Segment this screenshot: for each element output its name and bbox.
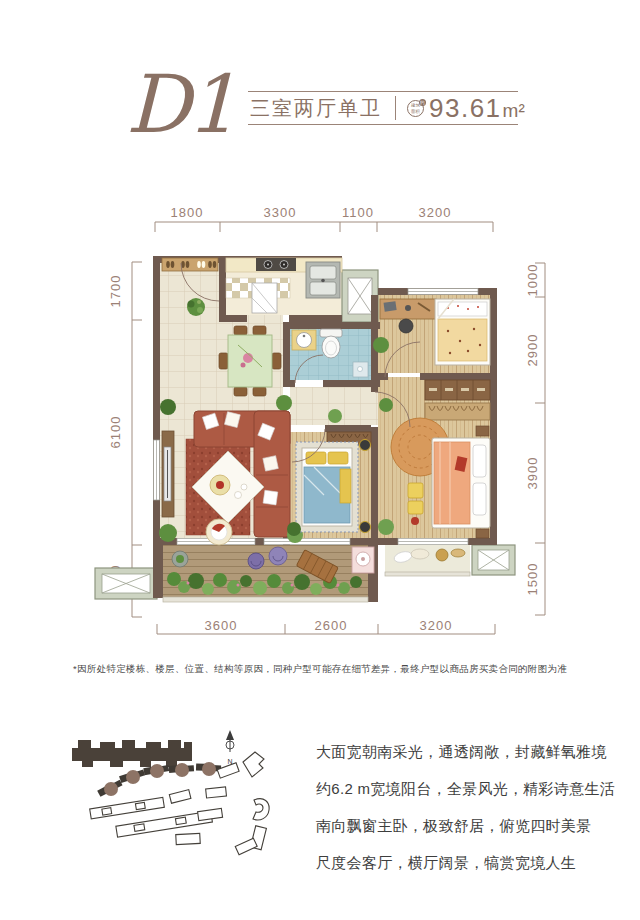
shoe-cabinet [162,258,218,271]
dim-left-1700: 1700 [108,275,123,308]
dim-top-1100: 1100 [342,205,374,220]
bathroom-vanity [292,330,316,350]
desk-chair [399,319,413,333]
master-nightstand-south [476,529,489,538]
kitchen-sink [306,262,340,298]
header-rule-bottom [248,124,518,125]
area-badge-mark: 约 [419,99,426,106]
area-badge-icon: 建筑 面积 约 [407,100,424,117]
dim-bottom-2600: 2600 [315,618,348,633]
arc-buildings [97,762,221,797]
dim-right-3900: 3900 [525,457,540,490]
unit-type-label: 三室两厅单卫 [250,95,382,122]
dim-right-2900: 2900 [525,334,540,367]
bay-railing [385,572,470,576]
master-plant-south [378,519,394,535]
bedroom2-plant-south [287,522,301,536]
header-row: 三室两厅单卫 建筑 面积 约 93.61 m² [248,92,518,124]
entry-plant [187,298,205,316]
description-line-1: 大面宽朝南采光，通透阔敞，封藏鲜氧雅境 [316,744,574,760]
dining-plant [276,395,292,411]
ac-platform-left [95,568,157,599]
master-wardrobe [425,380,490,420]
hall-plant [328,409,342,423]
description-block: 大面宽朝南采光，通透阔敞，封藏鲜氧雅境 约6.2 m宽境阳台，全景风光，精彩诗意… [316,744,574,892]
dim-top-3300: 3300 [264,205,297,220]
disclaimer-note: *因所处特定楼栋、楼层、位置、结构等原因，同种户型可能存在细节差异，最终户型以商… [0,663,640,676]
dim-top-3200: 3200 [419,205,452,220]
site-plan: N [58,722,283,877]
stove [256,258,296,271]
bedroom2-lamp-south [360,522,371,533]
balcony-side-table [172,551,188,567]
ac-platform-right [472,545,515,575]
dining-table [219,326,281,396]
dim-top-1800: 1800 [171,205,204,220]
master-nightstand-north [476,426,489,436]
header-divider [395,96,396,120]
highlighted-building [72,740,192,767]
floorplan-poster-page: D1 三室两厅单卫 建筑 面积 约 93.61 m² [0,0,640,920]
dim-bottom-3200: 3200 [420,618,453,633]
plan-code: D1 [126,52,246,157]
floor-plan: 1800 3300 1100 3200 3600 2600 3200 1700 … [88,195,558,665]
tv-cabinet [162,431,174,517]
second-bedroom-bed [296,442,358,532]
balcony-railing [163,597,368,602]
header-info: 三室两厅单卫 建筑 面积 约 93.61 m² [248,91,518,125]
kitchen-rack [252,283,277,313]
study-bed [435,299,490,365]
shower-corner [353,362,368,377]
compass-icon: N [226,730,234,765]
area-figure: 93.61 m² [429,93,525,124]
area-value: 93.61 [429,93,502,124]
dim-bottom-3600: 3600 [205,618,238,633]
living-plant-north [160,399,176,415]
washing-machine [352,547,374,573]
description-line-4: 尺度会客厅，横厅阔景，犒赏宽境人生 [316,855,574,871]
dim-left-6100: 6100 [108,416,123,449]
description-line-2: 约6.2 m宽境阳台，全景风光，精彩诗意生活 [316,781,574,797]
area-unit: m² [503,100,525,122]
living-plant-south [159,524,177,542]
area-badge-line2: 面积 [411,109,420,114]
description-line-3: 南向飘窗主卧，极致舒居，俯览四时美景 [316,818,574,834]
study-plant [373,337,389,353]
dim-right-1500: 1500 [525,563,540,596]
master-bed [432,438,490,528]
dim-right-1000: 1000 [525,264,540,297]
side-tray-table [206,519,232,545]
bedroom2-lamp-north [360,440,371,451]
master-plant-north [379,398,393,412]
